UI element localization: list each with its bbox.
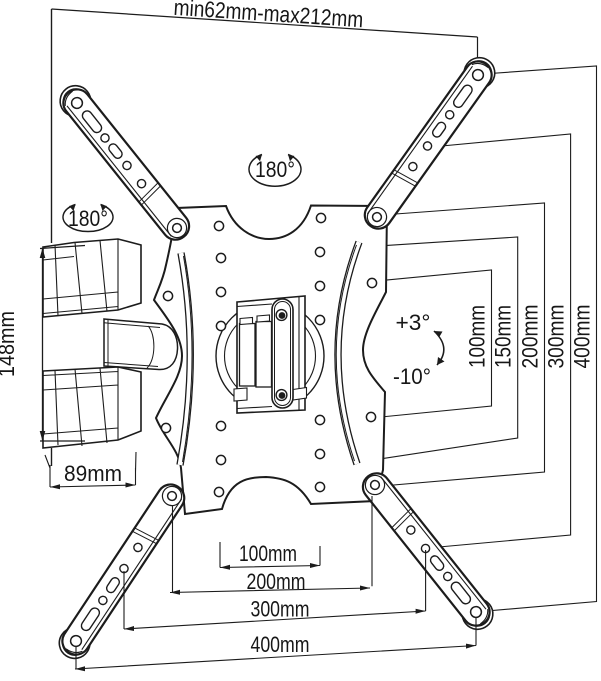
svg-text:180°: 180° <box>255 157 295 182</box>
svg-text:300mm: 300mm <box>544 305 569 369</box>
svg-text:+3°: +3° <box>396 310 431 335</box>
svg-text:200mm: 200mm <box>518 305 543 369</box>
svg-text:300mm: 300mm <box>251 597 310 622</box>
svg-text:180°: 180° <box>68 206 108 231</box>
svg-text:400mm: 400mm <box>251 632 310 657</box>
svg-text:200mm: 200mm <box>247 569 306 594</box>
svg-text:100mm: 100mm <box>239 541 297 566</box>
svg-text:100mm: 100mm <box>465 305 490 368</box>
svg-text:400mm: 400mm <box>570 305 595 369</box>
svg-text:89mm: 89mm <box>64 461 122 486</box>
svg-text:150mm: 150mm <box>491 305 516 368</box>
svg-text:-10°: -10° <box>393 364 431 389</box>
svg-text:148mm: 148mm <box>0 311 19 377</box>
